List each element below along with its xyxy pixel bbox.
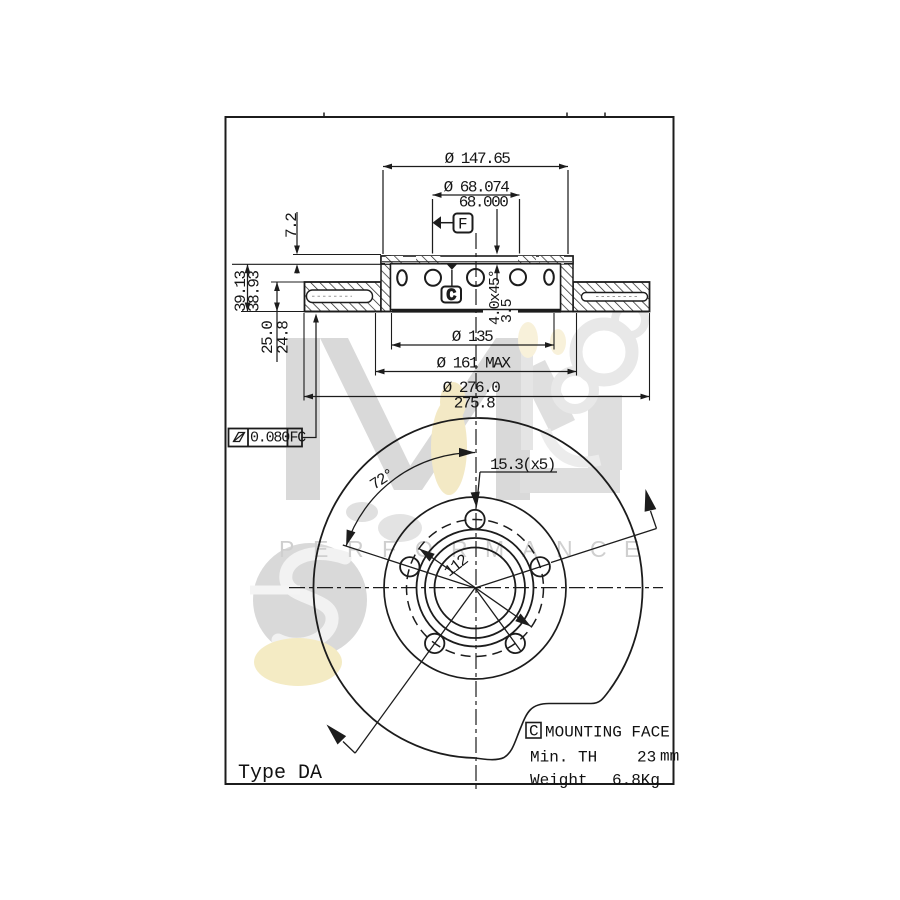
svg-text:Min. TH: Min. TH <box>530 749 597 767</box>
svg-text:3.5: 3.5 <box>499 298 516 323</box>
svg-text:F: F <box>458 216 468 234</box>
svg-text:0.080: 0.080 <box>250 430 290 447</box>
svg-text:E: E <box>624 536 639 562</box>
svg-text:15.3(x5): 15.3(x5) <box>490 456 555 474</box>
svg-text:MOUNTING FACE: MOUNTING FACE <box>545 724 670 742</box>
svg-text:Ø 147.65: Ø 147.65 <box>445 150 511 168</box>
svg-text:P: P <box>279 536 294 562</box>
svg-text:6.8Kg: 6.8Kg <box>612 772 660 790</box>
svg-text:Ø 161 MAX: Ø 161 MAX <box>437 355 512 373</box>
svg-text:C: C <box>447 287 457 305</box>
svg-text:Type DA: Type DA <box>238 762 322 785</box>
svg-text:275.8: 275.8 <box>454 395 495 413</box>
svg-text:Weight: Weight <box>530 772 588 790</box>
svg-text:mm: mm <box>660 748 679 766</box>
svg-text:68.000: 68.000 <box>459 194 509 212</box>
svg-text:7.2: 7.2 <box>283 213 301 238</box>
svg-text:Ø 135: Ø 135 <box>452 328 493 346</box>
svg-text:23: 23 <box>637 749 656 767</box>
svg-text:C: C <box>529 723 539 741</box>
